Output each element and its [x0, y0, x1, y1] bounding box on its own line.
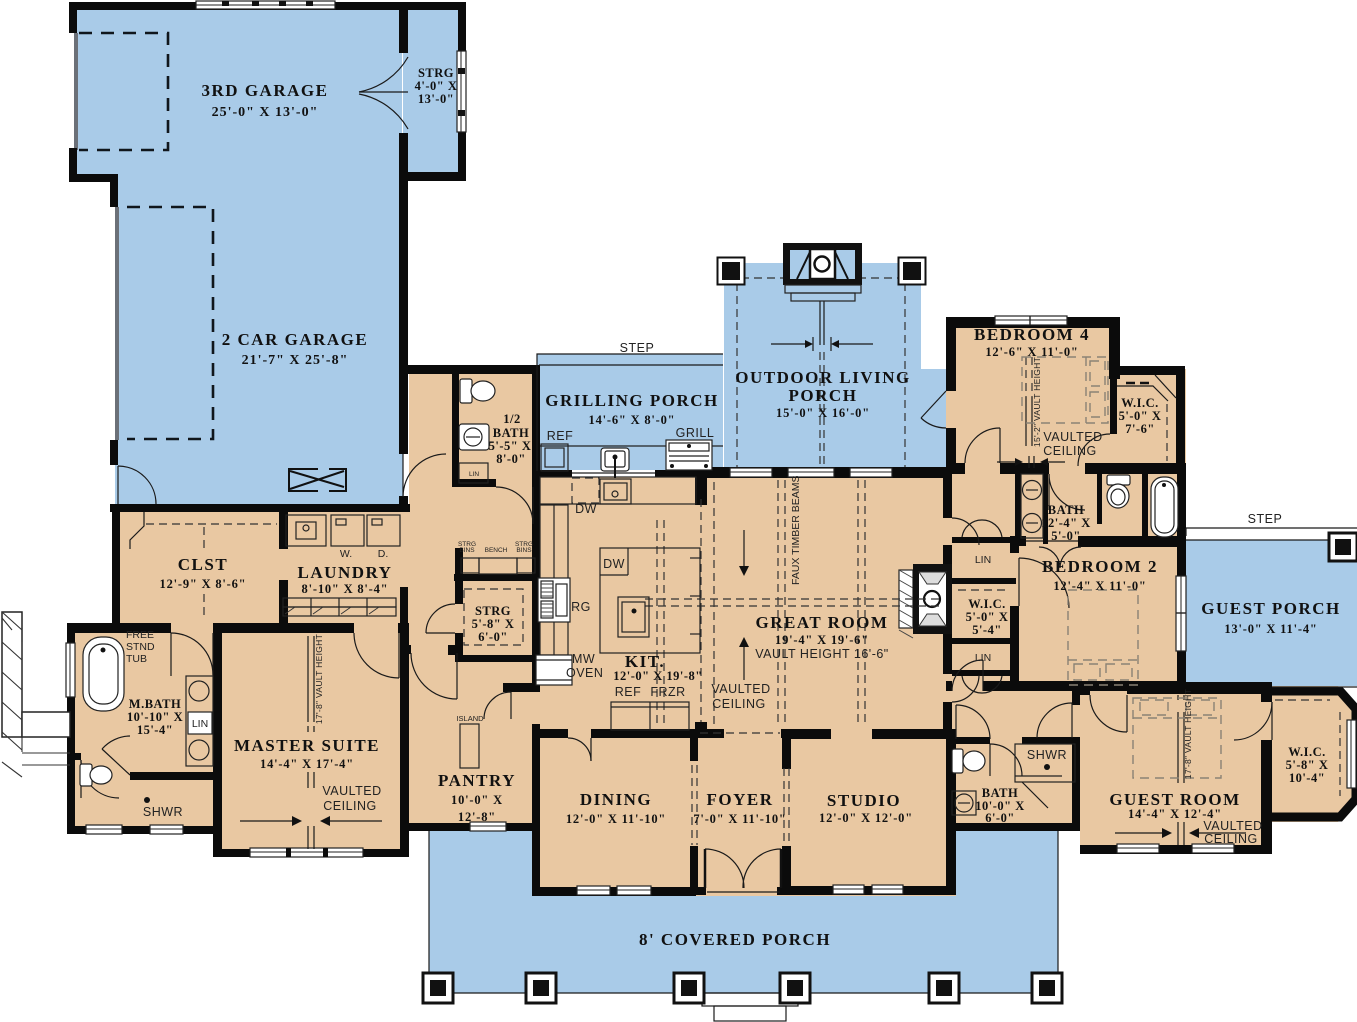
svg-text:STUDIO: STUDIO — [827, 791, 901, 810]
svg-text:BEDROOM 4: BEDROOM 4 — [974, 325, 1090, 344]
svg-text:GUEST PORCH: GUEST PORCH — [1201, 599, 1340, 618]
svg-text:W.: W. — [340, 548, 352, 560]
svg-text:GRILL: GRILL — [676, 426, 715, 440]
svg-text:FAUX TIMBER BEAMS: FAUX TIMBER BEAMS — [790, 476, 802, 586]
svg-text:BATH: BATH — [493, 426, 530, 440]
svg-text:5'-8" X: 5'-8" X — [472, 617, 515, 631]
svg-text:10'-10" X: 10'-10" X — [127, 710, 183, 724]
svg-text:12'-0" X 19'-8": 12'-0" X 19'-8" — [613, 669, 702, 683]
svg-text:TUB: TUB — [126, 653, 147, 665]
svg-text:VAULTED: VAULTED — [1043, 430, 1102, 444]
svg-text:W.I.C.: W.I.C. — [968, 597, 1006, 611]
svg-text:LIN: LIN — [975, 554, 991, 566]
svg-text:BINS: BINS — [516, 547, 532, 554]
svg-text:13'-0" X 11'-4": 13'-0" X 11'-4" — [1224, 622, 1317, 636]
svg-text:12'-0" X 12'-0": 12'-0" X 12'-0" — [819, 811, 913, 825]
svg-text:4'-0" X: 4'-0" X — [415, 79, 458, 93]
svg-text:BENCH: BENCH — [485, 547, 508, 554]
svg-text:D.: D. — [378, 548, 389, 560]
svg-text:BATH: BATH — [1048, 503, 1085, 517]
svg-text:21'-7" X 25'-8": 21'-7" X 25'-8" — [242, 353, 349, 368]
svg-text:STRG: STRG — [475, 604, 511, 618]
svg-text:STEP: STEP — [620, 341, 655, 355]
svg-text:FREE: FREE — [126, 629, 154, 641]
svg-text:BEDROOM 2: BEDROOM 2 — [1042, 557, 1158, 576]
svg-text:PANTRY: PANTRY — [438, 771, 516, 790]
svg-text:1/2: 1/2 — [503, 412, 520, 426]
svg-text:BINS: BINS — [459, 547, 475, 554]
svg-text:25'-0" X 13'-0": 25'-0" X 13'-0" — [212, 105, 319, 120]
svg-text:ISLAND: ISLAND — [456, 714, 484, 723]
svg-text:15'-4": 15'-4" — [137, 723, 173, 737]
svg-text:6'-0": 6'-0" — [478, 630, 508, 644]
svg-text:VAULTED: VAULTED — [322, 784, 381, 798]
svg-text:CEILING: CEILING — [712, 697, 766, 711]
svg-text:14'-6" X 8'-0": 14'-6" X 8'-0" — [589, 413, 676, 427]
svg-text:STND: STND — [126, 641, 155, 653]
svg-text:7'-6": 7'-6" — [1125, 422, 1155, 436]
svg-text:OUTDOOR LIVING: OUTDOOR LIVING — [735, 368, 910, 387]
svg-text:5'-8" X: 5'-8" X — [1286, 758, 1329, 772]
svg-text:13'-0": 13'-0" — [418, 92, 454, 106]
svg-text:CLST: CLST — [178, 555, 228, 574]
svg-text:SHWR: SHWR — [143, 805, 183, 819]
svg-text:CEILING: CEILING — [1204, 832, 1258, 846]
svg-text:W.I.C.: W.I.C. — [1288, 745, 1326, 759]
svg-text:12'-6" X 11'-0": 12'-6" X 11'-0" — [985, 345, 1078, 359]
svg-text:17'-8" VAULT HEIGHT: 17'-8" VAULT HEIGHT — [314, 634, 324, 724]
svg-text:MASTER SUITE: MASTER SUITE — [234, 736, 380, 755]
svg-text:10'-0" X: 10'-0" X — [451, 793, 503, 807]
svg-text:12'-8": 12'-8" — [458, 810, 496, 824]
svg-text:GREAT ROOM: GREAT ROOM — [756, 613, 889, 632]
svg-text:5'-4": 5'-4" — [972, 623, 1002, 637]
svg-text:FRZR: FRZR — [650, 685, 685, 699]
svg-text:5'-0" X: 5'-0" X — [1119, 409, 1162, 423]
svg-text:15'-0" X 16'-0": 15'-0" X 16'-0" — [776, 406, 870, 420]
svg-text:5'-5" X: 5'-5" X — [489, 439, 532, 453]
svg-text:12'-9" X 8'-6": 12'-9" X 8'-6" — [160, 577, 247, 591]
svg-text:REF: REF — [547, 429, 574, 443]
svg-text:DW: DW — [575, 502, 597, 516]
svg-text:2 CAR GARAGE: 2 CAR GARAGE — [222, 330, 368, 349]
svg-text:VAULTED: VAULTED — [1203, 819, 1262, 833]
svg-text:OVEN: OVEN — [566, 666, 603, 680]
svg-text:3RD GARAGE: 3RD GARAGE — [202, 81, 329, 100]
svg-text:12'-4" X: 12'-4" X — [1041, 516, 1090, 530]
svg-text:CEILING: CEILING — [1043, 444, 1097, 458]
svg-text:8'-0": 8'-0" — [496, 452, 526, 466]
svg-text:FOYER: FOYER — [707, 790, 774, 809]
svg-text:STRG: STRG — [418, 66, 454, 80]
svg-text:12'-4" X 11'-0": 12'-4" X 11'-0" — [1053, 579, 1146, 593]
svg-text:LIN: LIN — [192, 718, 208, 730]
svg-text:STEP: STEP — [1248, 512, 1283, 526]
svg-text:BATH: BATH — [982, 786, 1019, 800]
svg-text:MW: MW — [572, 652, 595, 666]
svg-text:8'-10" X 8'-4": 8'-10" X 8'-4" — [302, 582, 389, 596]
svg-text:VAULTED: VAULTED — [711, 682, 770, 696]
svg-text:14'-4" X 17'-4": 14'-4" X 17'-4" — [260, 757, 354, 771]
svg-text:CEILING: CEILING — [323, 799, 377, 813]
svg-text:LIN: LIN — [469, 471, 479, 478]
svg-text:M.BATH: M.BATH — [129, 697, 181, 711]
svg-text:REF: REF — [615, 685, 642, 699]
svg-text:12'-0" X 11'-10": 12'-0" X 11'-10" — [566, 812, 666, 826]
svg-text:VAULT HEIGHT 16'-6": VAULT HEIGHT 16'-6" — [755, 647, 889, 661]
svg-text:LAUNDRY: LAUNDRY — [298, 563, 393, 582]
svg-text:10'-4": 10'-4" — [1289, 771, 1325, 785]
svg-text:15'-2" VAULT HEIGHT: 15'-2" VAULT HEIGHT — [1032, 357, 1042, 447]
svg-text:8' COVERED PORCH: 8' COVERED PORCH — [639, 930, 831, 949]
svg-text:17'-8" VAULT HEIGHT: 17'-8" VAULT HEIGHT — [1183, 689, 1193, 779]
svg-text:DW: DW — [603, 557, 625, 571]
svg-text:DINING: DINING — [580, 790, 652, 809]
svg-text:6'-0": 6'-0" — [985, 811, 1015, 825]
svg-text:19'-4" X 19'-6": 19'-4" X 19'-6" — [775, 633, 869, 647]
svg-text:GRILLING PORCH: GRILLING PORCH — [545, 391, 719, 410]
svg-text:5'-0": 5'-0" — [1051, 529, 1081, 543]
svg-text:5'-0" X: 5'-0" X — [966, 610, 1009, 624]
svg-text:SHWR: SHWR — [1027, 748, 1067, 762]
svg-text:7'-0" X 11'-10": 7'-0" X 11'-10" — [693, 812, 786, 826]
svg-text:W.I.C.: W.I.C. — [1121, 396, 1159, 410]
svg-text:PORCH: PORCH — [789, 386, 858, 405]
svg-text:RG: RG — [571, 600, 591, 614]
svg-text:LIN: LIN — [975, 652, 991, 664]
